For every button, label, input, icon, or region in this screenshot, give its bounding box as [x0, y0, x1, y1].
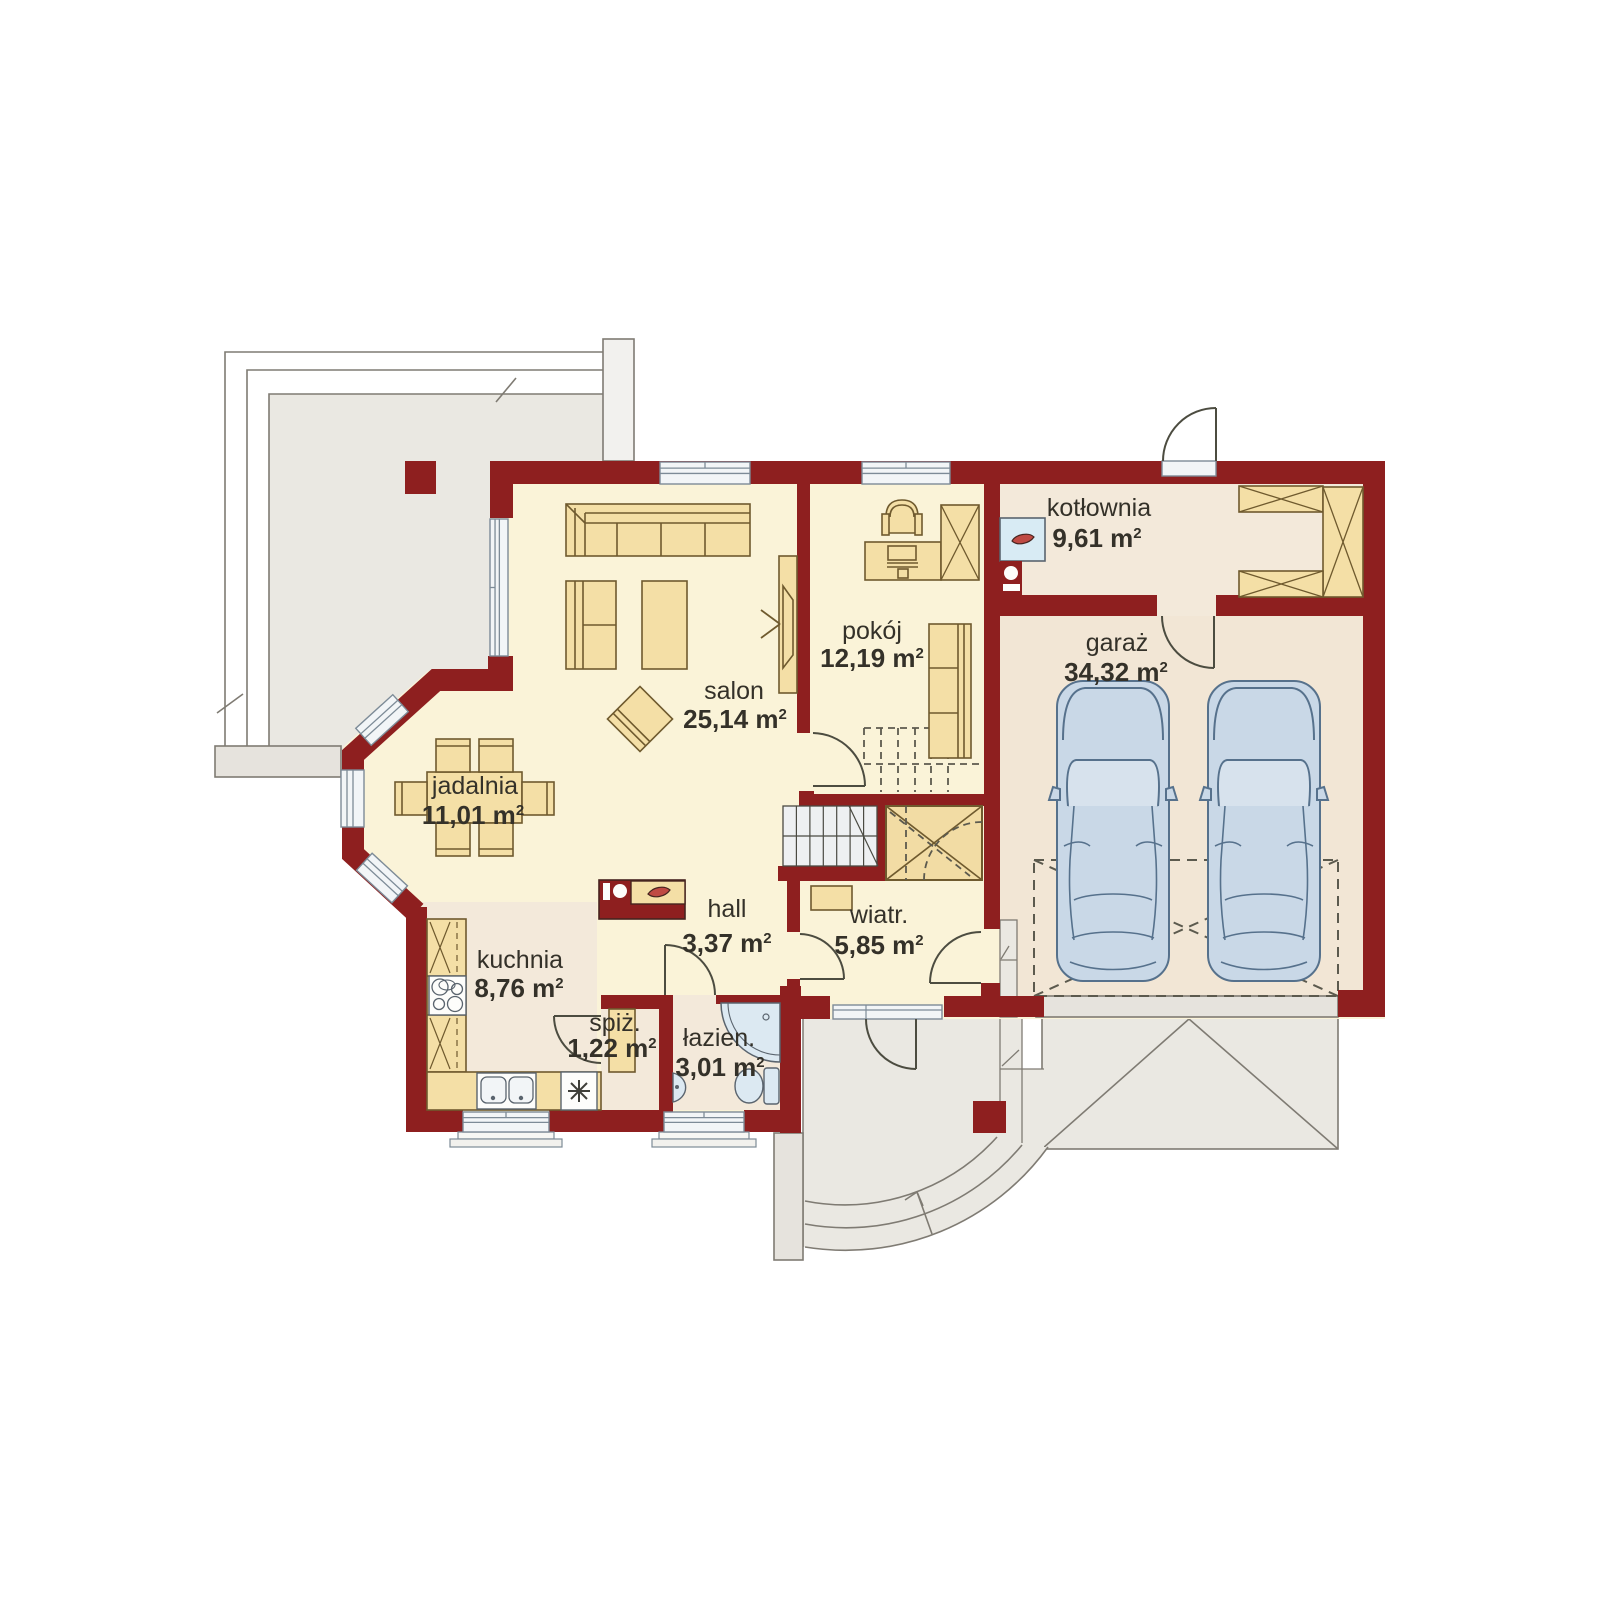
svg-text:9,61 m2: 9,61 m2	[1052, 523, 1141, 553]
svg-text:jadalnia: jadalnia	[431, 772, 518, 800]
svg-text:łazien.: łazien.	[683, 1024, 755, 1052]
svg-text:salon: salon	[704, 677, 764, 705]
svg-text:25,14 m2: 25,14 m2	[683, 704, 787, 734]
svg-text:12,19 m2: 12,19 m2	[820, 643, 924, 673]
svg-text:wiatr.: wiatr.	[849, 901, 908, 929]
svg-text:8,76 m2: 8,76 m2	[474, 973, 563, 1003]
svg-text:hall: hall	[708, 895, 747, 923]
svg-text:kotłownia: kotłownia	[1047, 494, 1151, 522]
svg-text:kuchnia: kuchnia	[477, 946, 563, 974]
svg-text:5,85 m2: 5,85 m2	[834, 930, 923, 960]
svg-text:1,22 m2: 1,22 m2	[567, 1033, 656, 1063]
svg-text:3,37 m2: 3,37 m2	[682, 928, 771, 958]
svg-text:11,01 m2: 11,01 m2	[422, 800, 524, 830]
svg-text:pokój: pokój	[842, 617, 902, 645]
svg-text:34,32 m2: 34,32 m2	[1064, 657, 1168, 687]
svg-text:3,01 m2: 3,01 m2	[675, 1052, 764, 1082]
svg-text:garaż: garaż	[1086, 629, 1149, 657]
